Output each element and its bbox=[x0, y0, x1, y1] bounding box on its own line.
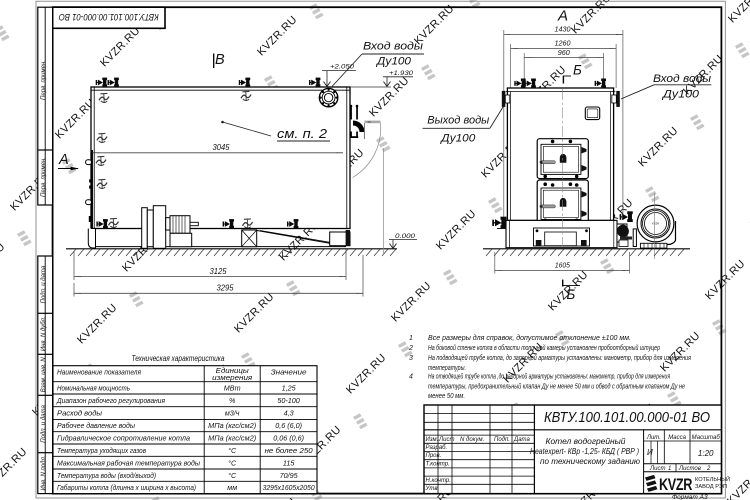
svg-text:И: И bbox=[647, 448, 653, 457]
svg-text:Инв. N дубл.: Инв. N дубл. bbox=[41, 316, 47, 351]
svg-text:°С: °С bbox=[228, 446, 237, 455]
svg-text:Утв.: Утв. bbox=[425, 486, 440, 492]
svg-text:Дата: Дата bbox=[513, 437, 530, 443]
svg-text:Heatexpert- КВр -1,25- КБД ( Р: Heatexpert- КВр -1,25- КБД ( РВР ) bbox=[530, 447, 639, 456]
svg-text:А: А bbox=[557, 8, 568, 25]
svg-text:Перв. примен.: Перв. примен. bbox=[41, 157, 47, 197]
svg-text:70/95: 70/95 bbox=[280, 471, 299, 480]
svg-text:измерения: измерения bbox=[212, 373, 252, 382]
svg-text:1260: 1260 bbox=[555, 38, 572, 47]
svg-text:3295: 3295 bbox=[217, 284, 235, 293]
svg-text:Габариты котла (длинна х ширин: Габариты котла (длинна х ширина х высота… bbox=[57, 483, 196, 492]
svg-text:N докум.: N докум. bbox=[460, 437, 484, 443]
svg-text:960: 960 bbox=[558, 48, 571, 57]
svg-text:мм: мм bbox=[227, 483, 237, 492]
svg-text:%: % bbox=[229, 396, 236, 405]
svg-text:°С: °С bbox=[228, 459, 237, 468]
svg-text:+1.930: +1.930 bbox=[389, 70, 413, 77]
svg-text:Вход воды: Вход воды bbox=[653, 73, 711, 85]
svg-text:0,6 (6,0): 0,6 (6,0) bbox=[275, 421, 302, 430]
svg-text:Температура воды (вход/выход): Температура воды (вход/выход) bbox=[57, 471, 156, 480]
svg-text:МПа (кгс/см2): МПа (кгс/см2) bbox=[208, 421, 256, 430]
svg-text:4: 4 bbox=[409, 374, 413, 381]
svg-text:Инв. N подл.: Инв. N подл. bbox=[41, 455, 47, 490]
svg-text:Т.контр.: Т.контр. bbox=[426, 461, 450, 467]
svg-text:Рабочее давление воды: Рабочее давление воды bbox=[57, 421, 136, 430]
svg-text:Разраб.: Разраб. bbox=[426, 445, 448, 451]
svg-text:ЗАВОД РЭП: ЗАВОД РЭП bbox=[695, 484, 727, 490]
svg-text:КВТУ.100.101.00.000-01 ВО: КВТУ.100.101.00.000-01 ВО bbox=[58, 11, 159, 22]
svg-text:+2.050: +2.050 bbox=[330, 64, 354, 71]
svg-text:МВт: МВт bbox=[224, 384, 241, 393]
svg-text:В: В bbox=[215, 52, 225, 68]
svg-text:Номинальная мощность: Номинальная мощность bbox=[57, 384, 130, 393]
svg-text:КВТУ.100.101.00.000-01 ВО: КВТУ.100.101.00.000-01 ВО bbox=[544, 410, 710, 426]
svg-text:2: 2 bbox=[706, 466, 711, 472]
svg-text:Н.контр.: Н.контр. bbox=[426, 478, 451, 484]
svg-text:А: А bbox=[58, 152, 69, 168]
svg-text:Б: Б bbox=[573, 63, 582, 78]
svg-text:Температура уходящих газов: Температура уходящих газов bbox=[57, 446, 146, 455]
svg-text:Расход воды: Расход воды bbox=[57, 409, 103, 418]
svg-text:1:20: 1:20 bbox=[698, 449, 714, 458]
svg-text:Диапазон рабочего регулировани: Диапазон рабочего регулирования bbox=[56, 396, 165, 405]
svg-text:Ду100: Ду100 bbox=[375, 56, 412, 68]
svg-text:KVZR: KVZR bbox=[652, 222, 659, 226]
svg-text:50-100: 50-100 bbox=[277, 396, 299, 405]
svg-text:Ду100: Ду100 bbox=[661, 89, 700, 101]
svg-text:1605: 1605 bbox=[555, 261, 571, 270]
svg-text:температуры, предохранительный: температуры, предохранительный клапан Ду… bbox=[428, 382, 685, 390]
svg-text:1430: 1430 bbox=[555, 25, 572, 34]
svg-text:4,3: 4,3 bbox=[284, 409, 294, 418]
svg-text:Все размеры для справок, допус: Все размеры для справок, допустимое откл… bbox=[428, 334, 631, 342]
svg-text:Подп.: Подп. bbox=[494, 437, 510, 443]
svg-text:На подводящей трубе котла, до: На подводящей трубе котла, до запорной а… bbox=[428, 354, 691, 362]
svg-text:115: 115 bbox=[283, 459, 295, 468]
svg-text:Б: Б bbox=[567, 287, 576, 302]
svg-text:3295х1605х2050: 3295х1605х2050 bbox=[263, 483, 315, 492]
svg-text:Взам. инв. N: Взам. инв. N bbox=[41, 357, 47, 393]
svg-text:Выход воды: Выход воды bbox=[427, 115, 489, 127]
svg-text:0.000: 0.000 bbox=[395, 234, 416, 240]
svg-text:Перв. примен.: Перв. примен. bbox=[41, 60, 47, 100]
svg-text:На боковой стенке котла в обла: На боковой стенке котла в области топочн… bbox=[428, 344, 660, 352]
svg-text:Масса: Масса bbox=[668, 435, 686, 441]
svg-text:Котел водогрейный: Котел водогрейный bbox=[546, 437, 627, 446]
svg-text:Гидравлическое сопротивление к: Гидравлическое сопротивление котла bbox=[57, 434, 190, 443]
svg-text:Изм.: Изм. bbox=[426, 437, 439, 443]
svg-text:Вход воды: Вход воды bbox=[363, 41, 423, 53]
svg-text:2: 2 bbox=[408, 345, 413, 352]
svg-text:Значение: Значение bbox=[271, 368, 307, 377]
svg-text:1,25: 1,25 bbox=[282, 384, 297, 393]
svg-text:KVZR: KVZR bbox=[659, 475, 692, 494]
svg-text:3125: 3125 bbox=[210, 267, 228, 276]
svg-text:по техническому заданию: по техническому заданию bbox=[540, 457, 640, 466]
svg-text:3: 3 bbox=[409, 355, 413, 362]
svg-text:На отводящей трубе котла ,до з: На отводящей трубе котла ,до запорной ар… bbox=[428, 373, 670, 381]
svg-text:0,06 (0,6): 0,06 (0,6) bbox=[273, 434, 304, 443]
svg-text:МПа (кгс/см2): МПа (кгс/см2) bbox=[208, 434, 256, 443]
svg-text:Масштаб: Масштаб bbox=[692, 435, 721, 441]
svg-text:3045: 3045 bbox=[213, 143, 231, 152]
svg-text:Максимальная рабочая температу: Максимальная рабочая температура воды bbox=[57, 459, 201, 468]
svg-text:м3/ч: м3/ч bbox=[225, 409, 240, 418]
svg-text:°С: °С bbox=[228, 471, 237, 480]
svg-text:Лит.: Лит. bbox=[646, 435, 661, 441]
svg-text:Ду100: Ду100 bbox=[439, 133, 476, 145]
svg-text:температуры.: температуры. bbox=[428, 365, 466, 372]
svg-text:Лист: Лист bbox=[438, 437, 454, 443]
svg-text:не более 250: не более 250 bbox=[265, 446, 313, 455]
svg-text:менее 50 мм.: менее 50 мм. bbox=[428, 393, 465, 400]
svg-text:Лист: Лист bbox=[649, 466, 665, 472]
svg-text:см. п. 2: см. п. 2 bbox=[277, 127, 327, 141]
svg-text:1: 1 bbox=[409, 335, 413, 342]
svg-text:Техническая характеристика: Техническая характеристика bbox=[132, 354, 225, 363]
svg-text:Подп. и дата: Подп. и дата bbox=[41, 265, 47, 303]
svg-text:Формат А3: Формат А3 bbox=[672, 494, 708, 500]
svg-text:КОТЕЛЬНЫЙ: КОТЕЛЬНЫЙ bbox=[695, 475, 730, 483]
svg-text:Пров.: Пров. bbox=[426, 453, 442, 459]
svg-text:Листов: Листов bbox=[678, 466, 701, 472]
svg-text:1: 1 bbox=[668, 466, 671, 472]
svg-text:Подп. и дата: Подп. и дата bbox=[41, 405, 47, 443]
svg-text:Наименование показателя: Наименование показателя bbox=[57, 368, 141, 377]
